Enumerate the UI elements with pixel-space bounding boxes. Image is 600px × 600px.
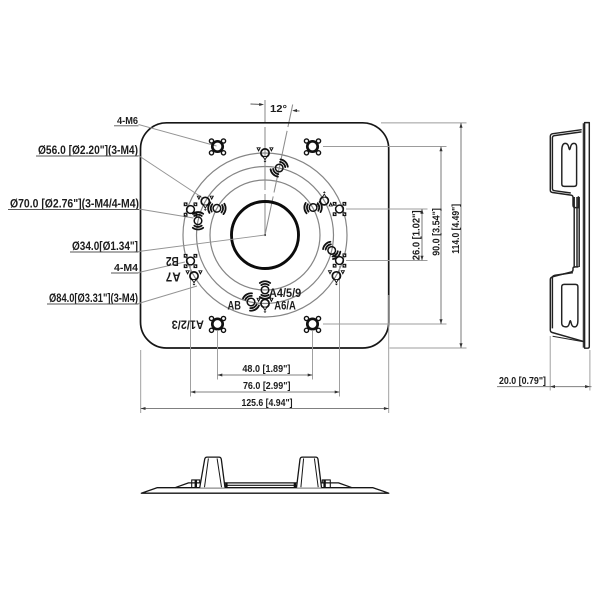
svg-text:Ø84.0[Ø3.31"](3-M4): Ø84.0[Ø3.31"](3-M4) bbox=[49, 293, 138, 305]
svg-text:26.0 [1.02"]: 26.0 [1.02"] bbox=[412, 210, 423, 260]
svg-text:12°: 12° bbox=[270, 104, 287, 115]
svg-text:A1/2/3: A1/2/3 bbox=[171, 318, 203, 332]
svg-text:B2: B2 bbox=[166, 254, 179, 268]
svg-text:Ø70.0 [Ø2.76"](3-M4/4-M4): Ø70.0 [Ø2.76"](3-M4/4-M4) bbox=[10, 199, 139, 211]
svg-text:4-M6: 4-M6 bbox=[117, 116, 138, 127]
svg-text:AB: AB bbox=[228, 299, 242, 313]
svg-text:114.0 [4.49"]: 114.0 [4.49"] bbox=[451, 204, 462, 254]
svg-text:Ø34.0[Ø1.34"]: Ø34.0[Ø1.34"] bbox=[72, 241, 138, 253]
svg-text:Ø56.0 [Ø2.20"](3-M4): Ø56.0 [Ø2.20"](3-M4) bbox=[38, 145, 138, 157]
svg-text:A7: A7 bbox=[166, 270, 181, 284]
svg-text:A4/5/9: A4/5/9 bbox=[269, 288, 301, 300]
svg-text:4-M4: 4-M4 bbox=[114, 263, 138, 274]
svg-text:76.0 [2.99"]: 76.0 [2.99"] bbox=[243, 381, 291, 392]
svg-text:48.0 [1.89"]: 48.0 [1.89"] bbox=[242, 364, 290, 375]
svg-text:125.6 [4.94"]: 125.6 [4.94"] bbox=[242, 398, 293, 409]
svg-text:20.0 [0.79"]: 20.0 [0.79"] bbox=[499, 376, 546, 387]
svg-text:A6/A: A6/A bbox=[274, 300, 296, 312]
svg-text:90.0 [3.54"]: 90.0 [3.54"] bbox=[432, 208, 443, 256]
